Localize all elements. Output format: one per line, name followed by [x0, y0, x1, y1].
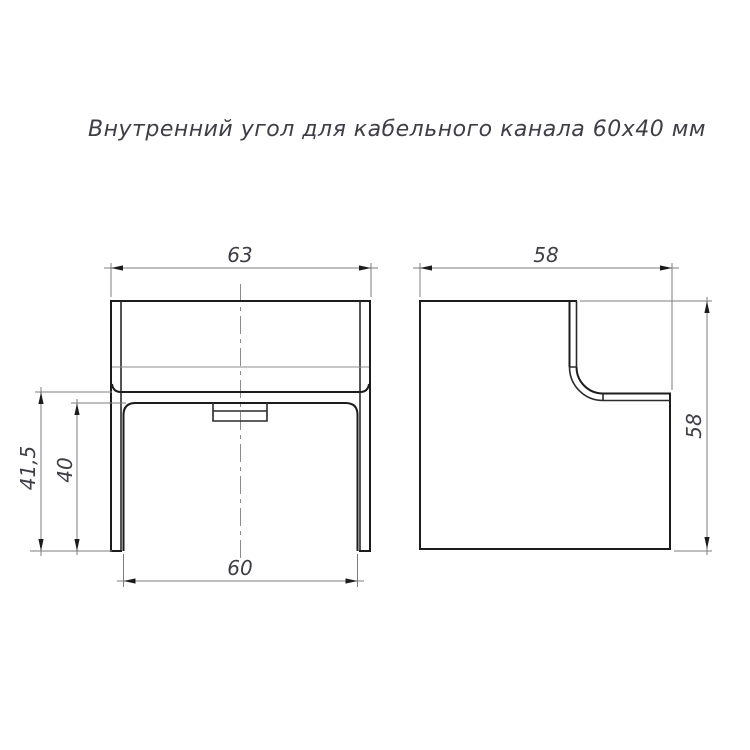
dim-41-5-value: 41,5	[16, 446, 40, 491]
dim-40-arrow-top	[74, 403, 79, 415]
side-dimensions: 58 58	[413, 243, 712, 555]
side-view	[420, 301, 670, 549]
side-groove-inner-arc	[577, 367, 671, 394]
side-groove-outer-arc	[570, 367, 671, 401]
dim-58-right-arrow-bottom	[704, 537, 709, 549]
dim-40-lines	[71, 399, 126, 555]
dim-63-arrow-left	[111, 265, 123, 270]
technical-drawing: Внутренний угол для кабельного канала 60…	[0, 0, 750, 750]
dim-58-top-arrow-right	[660, 265, 672, 270]
dim-60-arrow-left	[124, 578, 136, 583]
dim-63-value: 63	[227, 243, 252, 267]
dim-41-5-arrow-top	[38, 392, 43, 404]
dim-58-right-value: 58	[682, 413, 706, 438]
dim-58-top-lines	[413, 263, 679, 390]
dim-58-right-arrow-top	[704, 301, 709, 313]
front-dimensions: 63 60 41,5 40	[16, 243, 378, 587]
dim-63-arrow-right	[359, 265, 371, 270]
dim-40-arrow-bottom	[74, 539, 79, 551]
side-outer-body	[420, 301, 670, 549]
dim-40-value: 40	[53, 457, 77, 482]
dim-side-top-width: 58	[413, 243, 679, 390]
dim-60-arrow-right	[346, 578, 358, 583]
dim-front-bottom-width: 60	[117, 554, 364, 587]
dim-side-right-height: 58	[580, 297, 712, 555]
drawing-title: Внутренний угол для кабельного канала 60…	[88, 117, 706, 142]
dim-front-inner-height: 40	[53, 399, 126, 555]
dim-58-top-arrow-left	[420, 265, 432, 270]
drawing-canvas: Внутренний угол для кабельного канала 60…	[0, 0, 750, 750]
dim-41-5-arrow-bottom	[38, 539, 43, 551]
dim-58-top-value: 58	[533, 243, 558, 267]
dim-60-value: 60	[227, 556, 252, 580]
front-view	[110, 284, 371, 562]
